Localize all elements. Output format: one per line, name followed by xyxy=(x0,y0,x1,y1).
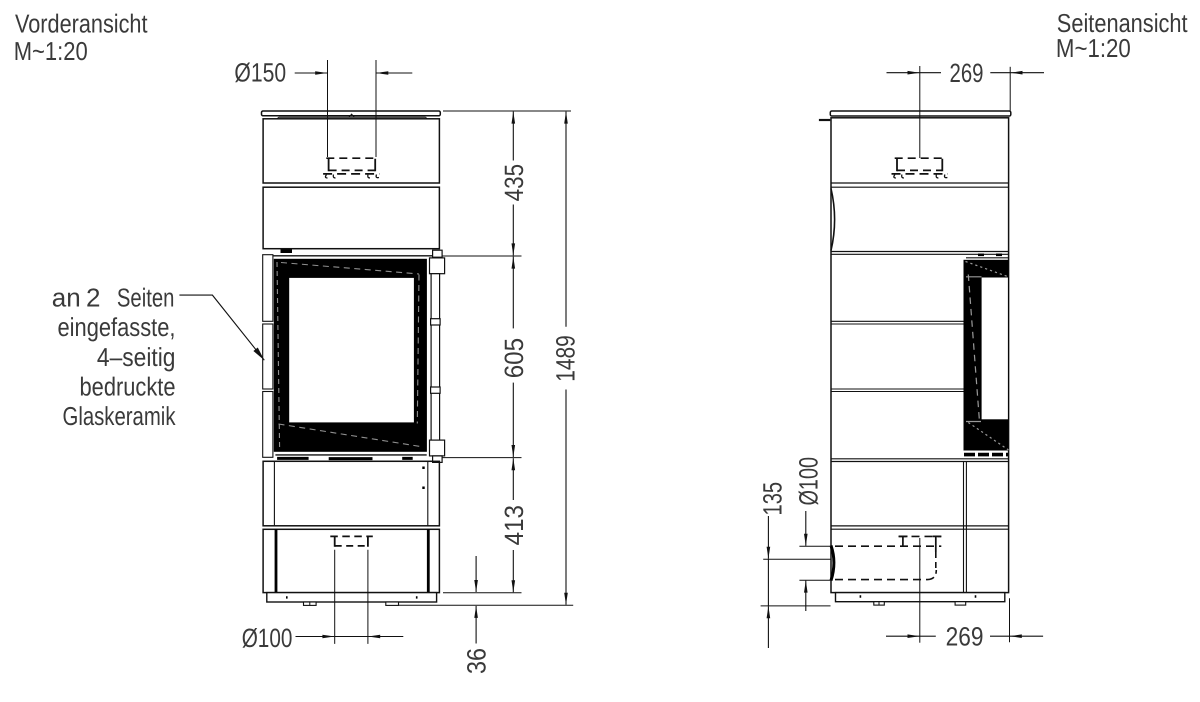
svg-text:4–seitig: 4–seitig xyxy=(97,342,176,372)
svg-text:2: 2 xyxy=(86,283,100,313)
svg-text:Vorderansicht: Vorderansicht xyxy=(15,9,148,39)
svg-text:Ø100: Ø100 xyxy=(793,457,823,506)
svg-text:eingefasste,: eingefasste, xyxy=(58,312,176,342)
svg-text:269: 269 xyxy=(946,621,984,651)
svg-text:135: 135 xyxy=(757,482,787,516)
svg-text:Ø150: Ø150 xyxy=(234,58,286,88)
svg-text:M~1:20: M~1:20 xyxy=(14,36,88,66)
svg-text:1489: 1489 xyxy=(551,335,581,382)
svg-text:Ø100: Ø100 xyxy=(242,623,293,653)
svg-text:435: 435 xyxy=(499,164,529,202)
svg-text:M~1:20: M~1:20 xyxy=(1056,33,1131,63)
svg-text:269: 269 xyxy=(950,58,984,88)
svg-text:bedruckte: bedruckte xyxy=(80,372,176,402)
svg-text:36: 36 xyxy=(462,648,492,674)
svg-text:605: 605 xyxy=(499,338,529,378)
svg-text:413: 413 xyxy=(499,505,529,545)
svg-text:Seiten: Seiten xyxy=(117,283,175,313)
svg-text:an: an xyxy=(52,283,81,313)
svg-text:Glaskeramik: Glaskeramik xyxy=(63,401,177,431)
